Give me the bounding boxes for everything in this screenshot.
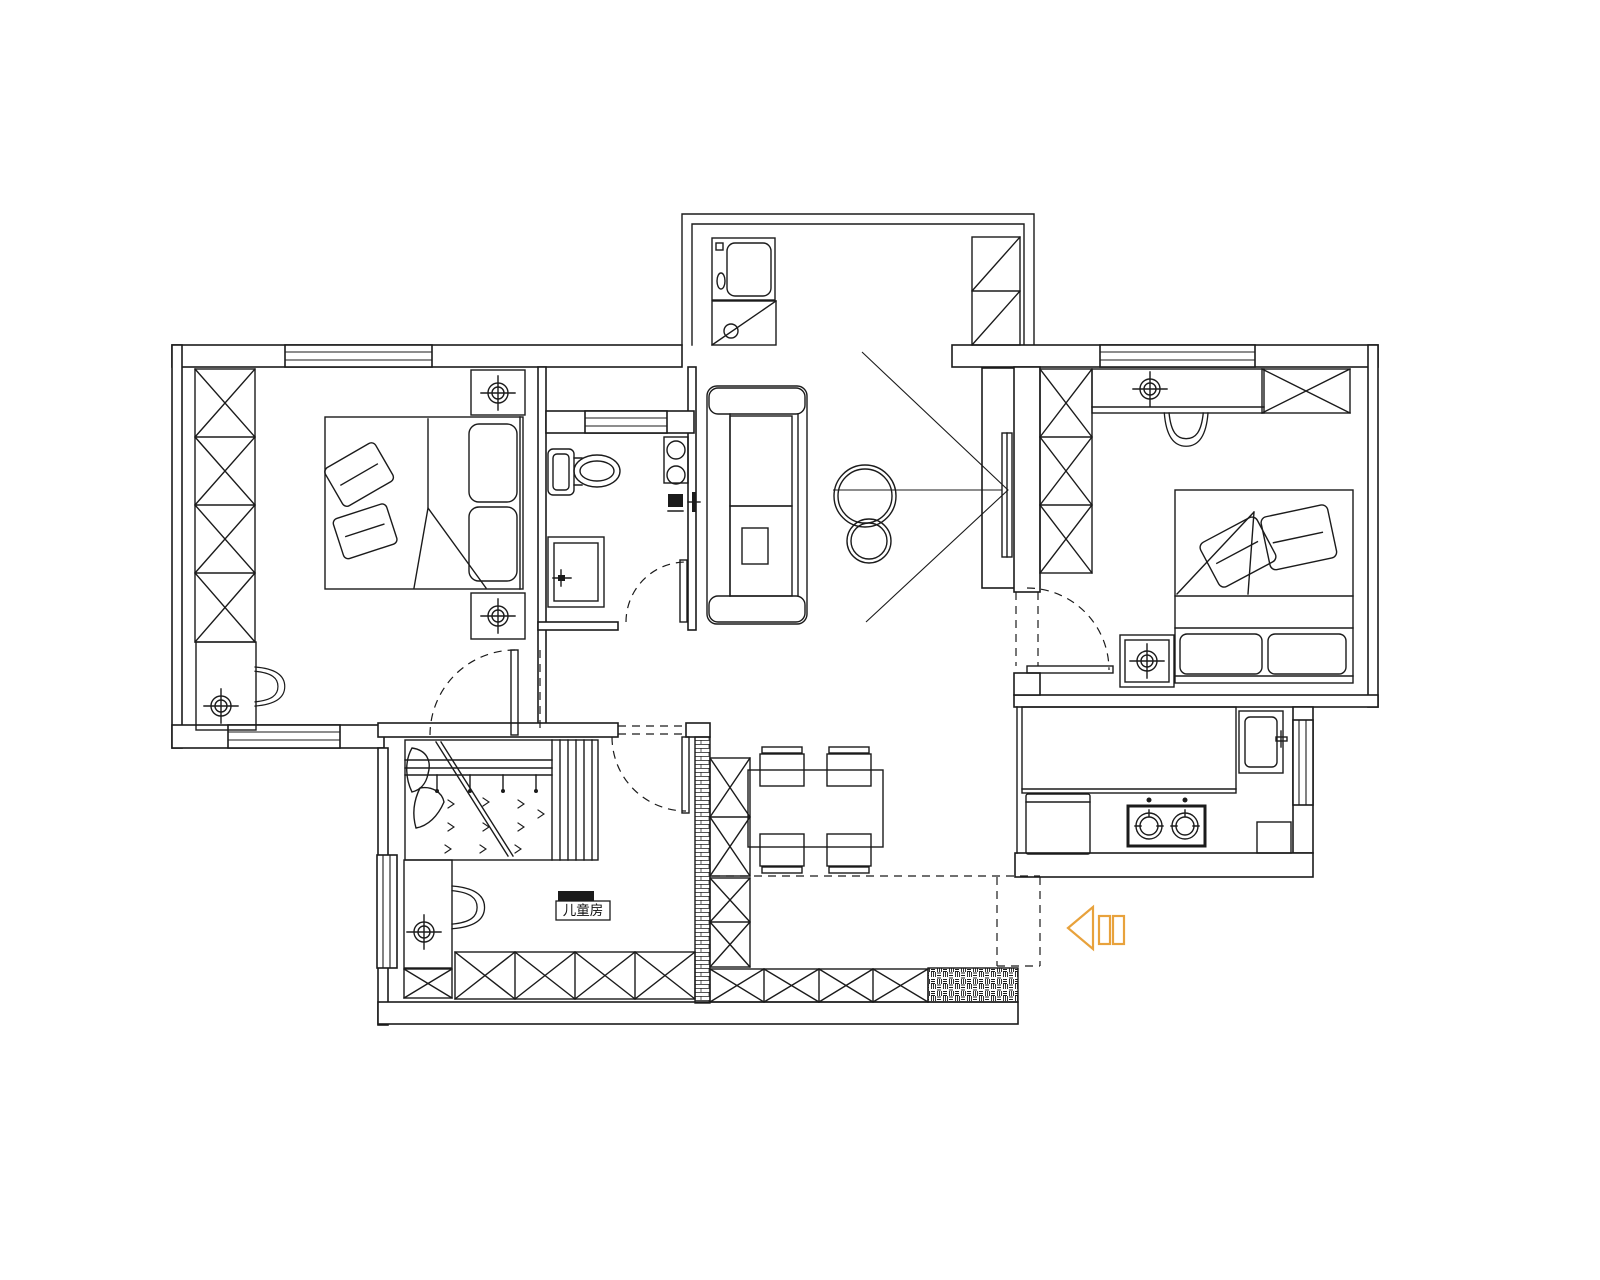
balcony-cabinet <box>972 237 1020 345</box>
dining-table <box>748 770 883 847</box>
wall-left <box>172 345 182 748</box>
entry-direction-arrow-icon <box>1068 907 1124 949</box>
master-bed <box>323 417 523 589</box>
laundry-cabinet <box>712 301 776 345</box>
wall-right <box>1368 345 1378 707</box>
brick-column <box>695 737 710 1003</box>
floor-plan-drawing: 儿童房 <box>0 0 1600 1280</box>
master-desk <box>196 642 256 730</box>
wall-kitchen-top <box>1014 695 1378 707</box>
bedroom2-corner-cabinet <box>1262 369 1350 413</box>
wall-bathroom-bottom <box>538 622 618 630</box>
children-desk-chair <box>452 886 485 929</box>
children-room-door <box>612 726 689 813</box>
kitchen-cabinet-box <box>1257 822 1291 853</box>
bottom-cabinet-row <box>710 969 928 1002</box>
dining-chair <box>827 747 871 786</box>
exterior-walls <box>172 214 1378 1025</box>
window-children-left <box>377 855 397 968</box>
window-master-bottom <box>228 725 340 748</box>
bathroom-vanity <box>548 537 604 607</box>
dining-chair <box>827 834 871 873</box>
window-bathroom <box>546 411 694 433</box>
floor-plan-canvas: 儿童房 <box>0 0 1600 1280</box>
lamp-icon <box>204 689 238 723</box>
hall-cabinet-column <box>710 758 750 967</box>
plant-decor-circles <box>834 465 896 563</box>
children-small-cabinet <box>404 969 452 998</box>
gas-stove <box>1128 798 1205 847</box>
fridge <box>1026 794 1090 854</box>
lamp-icon <box>1133 372 1167 406</box>
bathroom-fixture-switch <box>668 492 700 512</box>
bathroom-counter-basins <box>664 437 688 484</box>
wall-master-right <box>538 367 546 725</box>
bedroom2-bed <box>1175 490 1353 683</box>
dining-chairs <box>760 747 871 873</box>
bedroom2-desk <box>1092 369 1264 413</box>
wall-children-top-stub <box>686 723 710 737</box>
lamp-icon <box>481 376 515 410</box>
entry-mat-hatch <box>928 968 1018 1002</box>
bedroom2-door <box>1016 588 1113 673</box>
wall-kitchen-bottom <box>1015 853 1313 877</box>
children-room-label: 儿童房 <box>556 891 610 920</box>
bedroom2-desk-chair <box>1164 413 1208 446</box>
toilet <box>548 449 620 495</box>
washing-machine <box>712 238 775 300</box>
tv-feature-wall <box>982 368 1015 588</box>
kitchen-sink <box>1239 711 1287 773</box>
sofa <box>707 386 807 624</box>
lamp-icon <box>1130 644 1164 678</box>
entry-hall-lines <box>712 876 1040 966</box>
children-desk <box>404 860 452 968</box>
window-master-top <box>285 345 432 367</box>
children-wardrobe <box>455 952 695 999</box>
wall-children-top <box>378 723 618 737</box>
wall-bedroom2-left-stub <box>1014 673 1040 695</box>
lamp-icon <box>407 915 441 949</box>
wall-bottom <box>378 1002 1018 1024</box>
window-kitchen-right <box>1293 720 1313 805</box>
wall-bedroom2-left <box>1014 367 1040 592</box>
bedroom2-wardrobe <box>1040 369 1092 573</box>
children-bed <box>405 740 598 860</box>
kitchen-counter <box>1022 707 1236 793</box>
master-wardrobe <box>195 369 255 642</box>
bathroom-door <box>626 560 687 622</box>
lamp-icon <box>481 599 515 633</box>
balcony-inner-wall <box>692 224 1024 345</box>
dining-chair <box>760 834 804 873</box>
window-bedroom2-top <box>1100 345 1255 367</box>
room-label-text: 儿童房 <box>563 902 604 919</box>
dining-chair <box>760 747 804 786</box>
master-desk-chair <box>255 667 285 706</box>
